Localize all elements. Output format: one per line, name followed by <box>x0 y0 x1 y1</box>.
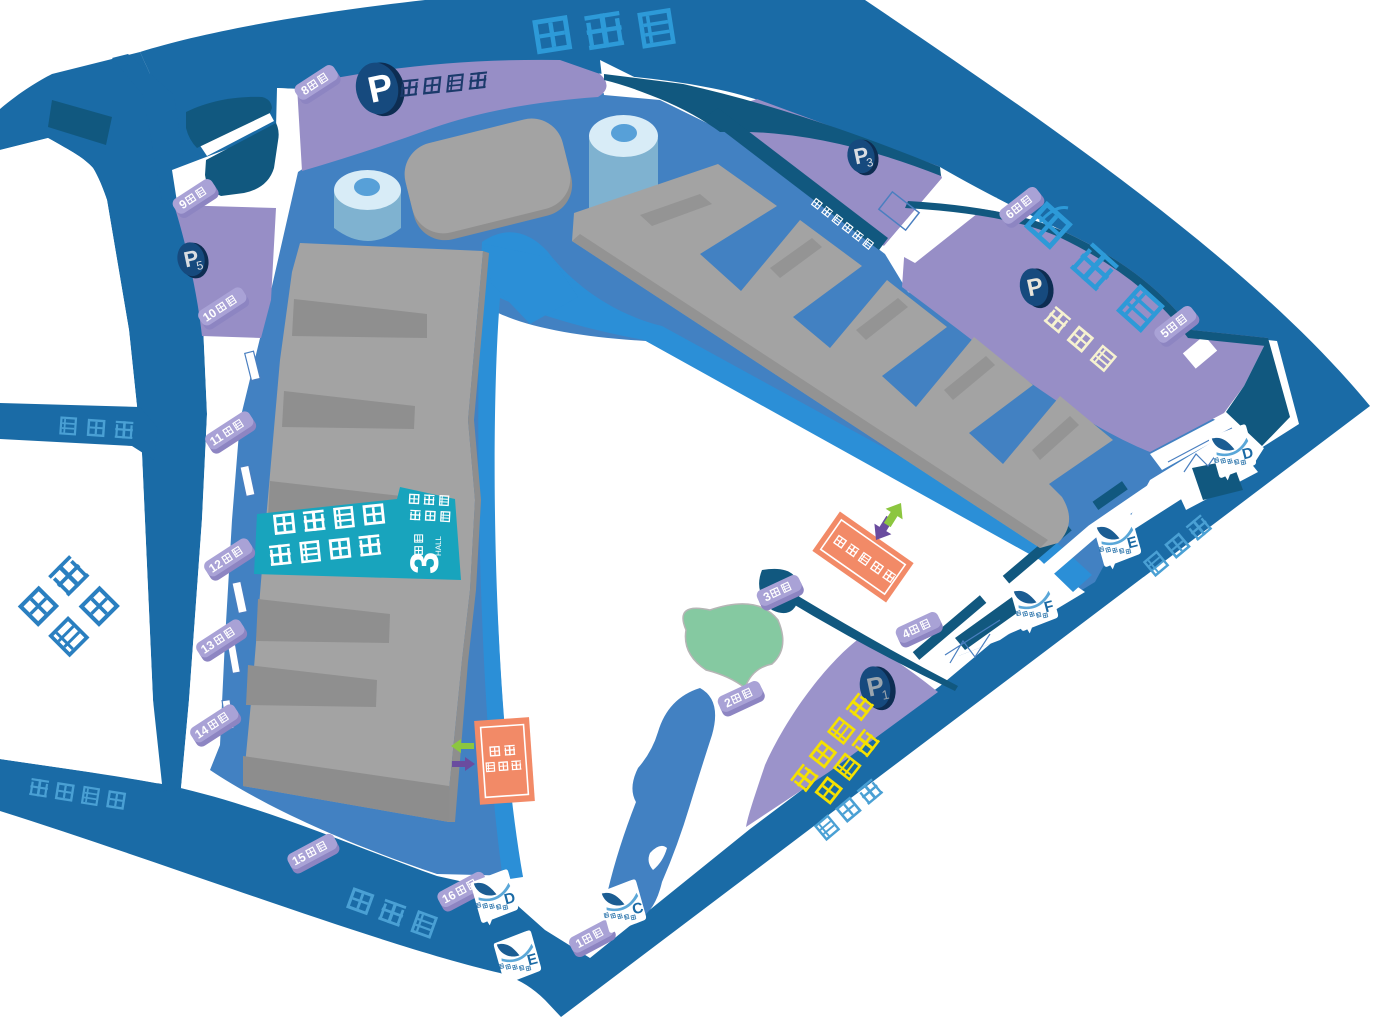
svg-text:HALL: HALL <box>434 535 443 556</box>
